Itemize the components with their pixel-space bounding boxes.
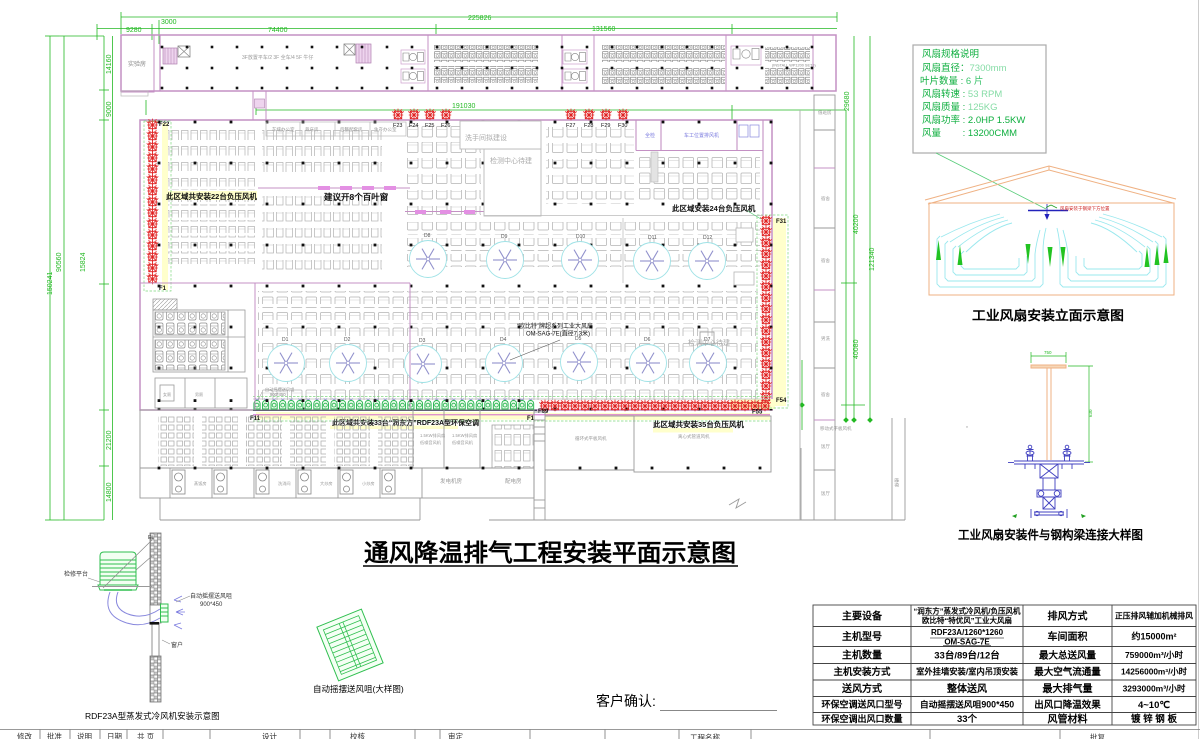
svg-text:21200: 21200 <box>106 430 113 450</box>
svg-text:主机安装方式: 主机安装方式 <box>833 666 891 678</box>
svg-text:环保空调送风口型号: 环保空调送风口型号 <box>821 699 902 710</box>
svg-text:9000: 9000 <box>106 101 113 117</box>
svg-text:风扇规格说明: 风扇规格说明 <box>922 48 979 60</box>
svg-text:90560: 90560 <box>56 252 63 272</box>
svg-text:最大空气流通量: 最大空气流通量 <box>1034 666 1101 678</box>
svg-text:风扇直径：7300mm: 风扇直径：7300mm <box>922 62 1007 74</box>
svg-text:F26: F26 <box>441 123 450 129</box>
svg-text:40080: 40080 <box>853 339 860 359</box>
svg-text:移动式平板风机: 移动式平板风机 <box>820 425 852 432</box>
svg-text:225826: 225826 <box>468 15 491 22</box>
svg-text:蒸饭房: 蒸饭房 <box>194 480 207 487</box>
svg-text:值班房: 值班房 <box>818 109 832 116</box>
svg-text:低噪音风机: 低噪音风机 <box>452 439 474 446</box>
svg-text:F25: F25 <box>425 123 434 129</box>
svg-text:1.5KW排风扇: 1.5KW排风扇 <box>420 432 445 439</box>
svg-text:工业风扇安装件与钢构梁连接大样图: 工业风扇安装件与钢构梁连接大样图 <box>958 527 1143 542</box>
svg-text:客户确认:: 客户确认: <box>596 693 656 709</box>
svg-text:说明: 说明 <box>77 731 92 739</box>
svg-text:检修平台: 检修平台 <box>64 570 88 578</box>
svg-text:F28: F28 <box>584 123 593 129</box>
svg-text:大炒房: 大炒房 <box>320 480 333 487</box>
svg-text:约15000m²: 约15000m² <box>1131 631 1176 642</box>
svg-text:此区域安装24台负压风机: 此区域安装24台负压风机 <box>672 203 756 213</box>
svg-text:楼梯: 楼梯 <box>893 478 900 487</box>
svg-text:主机数量: 主机数量 <box>842 649 882 662</box>
svg-text:工业风扇安装立面示意图: 工业风扇安装立面示意图 <box>972 308 1124 323</box>
svg-text:F24: F24 <box>409 123 418 129</box>
svg-text:121340: 121340 <box>869 248 876 271</box>
svg-text:环保空调出风口数量: 环保空调出风口数量 <box>821 713 902 724</box>
svg-text:循环式平板风机: 循环式平板风机 <box>575 435 607 442</box>
svg-text:后整配套房: 后整配套房 <box>340 126 363 133</box>
svg-text:F1: F1 <box>159 286 167 292</box>
svg-text:通风降温排气工程安装平面示意图: 通风降温排气工程安装平面示意图 <box>364 539 736 567</box>
svg-text:900*450: 900*450 <box>200 602 223 608</box>
svg-text:150241: 150241 <box>47 272 54 295</box>
svg-text:9280: 9280 <box>126 27 142 34</box>
svg-text:风管材料: 风管材料 <box>1048 712 1088 725</box>
svg-text:*: * <box>966 426 968 432</box>
svg-text:OM-SAG-7E: OM-SAG-7E <box>944 637 990 646</box>
svg-text:750: 750 <box>1044 350 1052 355</box>
svg-text:批复: 批复 <box>1090 732 1106 739</box>
svg-text:车缝办公室: 车缝办公室 <box>272 126 295 133</box>
svg-text:自动摇摆送风咀: 自动摇摆送风咀 <box>190 592 232 600</box>
svg-text:OM-SAG-7E(直径7.3米): OM-SAG-7E(直径7.3米) <box>526 330 590 338</box>
svg-text:D8: D8 <box>424 233 431 239</box>
svg-text:主机型号: 主机型号 <box>842 630 882 643</box>
svg-text:风扇质量 : 125KG: 风扇质量 : 125KG <box>922 101 998 113</box>
svg-text:宿舍: 宿舍 <box>821 257 830 264</box>
svg-text:镀 锌 钢 板: 镀 锌 钢 板 <box>1131 713 1177 725</box>
svg-text:出风口降温效果: 出风口降温效果 <box>1034 699 1101 711</box>
svg-text:F30: F30 <box>618 123 627 129</box>
svg-text:3293000m³/小时: 3293000m³/小时 <box>1123 683 1186 693</box>
svg-text:男厕: 男厕 <box>195 391 203 397</box>
svg-text:4~10℃: 4~10℃ <box>1138 700 1170 711</box>
svg-text:3000: 3000 <box>161 19 177 26</box>
svg-text:主要设备: 主要设备 <box>842 609 883 622</box>
svg-text:RDF23A型蒸发式冷风机安装示意图: RDF23A型蒸发式冷风机安装示意图 <box>85 711 220 721</box>
svg-text:日期: 日期 <box>107 732 122 739</box>
svg-text:实验房: 实验房 <box>128 60 146 68</box>
svg-text:此区域共安装22台负压风机: 此区域共安装22台负压风机 <box>166 191 257 201</box>
svg-text:裁床房: 裁床房 <box>305 126 319 133</box>
svg-text:生产办公室: 生产办公室 <box>374 126 397 133</box>
svg-text:131560: 131560 <box>592 26 615 33</box>
svg-text:1.5KW排风扇: 1.5KW排风扇 <box>452 432 477 439</box>
svg-text:风扇功率 : 2.0HP 1.5KW: 风扇功率 : 2.0HP 1.5KW <box>922 114 1025 126</box>
svg-text:40200: 40200 <box>853 214 860 234</box>
svg-text:风扇安装于钢梁下方位置: 风扇安装于钢梁下方位置 <box>1060 205 1110 212</box>
svg-text:小炒房: 小炒房 <box>362 480 375 487</box>
svg-text:F31: F31 <box>776 219 787 225</box>
svg-text:F22: F22 <box>159 122 170 128</box>
svg-text:风扇转速 : 53 RPM: 风扇转速 : 53 RPM <box>922 88 1002 100</box>
svg-text:D1: D1 <box>282 337 289 343</box>
svg-text:(INSTALL WP1200 SET6): (INSTALL WP1200 SET6) <box>772 64 816 68</box>
svg-text:33台/89台/12台: 33台/89台/12台 <box>934 649 1000 661</box>
svg-text:14800: 14800 <box>106 482 113 502</box>
svg-text:共 页: 共 页 <box>137 732 155 739</box>
svg-text:修改: 修改 <box>17 731 32 739</box>
svg-text:F27: F27 <box>566 123 575 129</box>
svg-text:74400: 74400 <box>268 27 288 34</box>
svg-text:洗消间: 洗消间 <box>278 480 291 487</box>
svg-text:EL: EL <box>148 535 154 541</box>
svg-text:3F放置平车/2 3F 全车/4 5F 牛仔: 3F放置平车/2 3F 全车/4 5F 牛仔 <box>242 54 313 61</box>
svg-text:759000m³/小时: 759000m³/小时 <box>1125 650 1184 660</box>
svg-text:室外挂墙安装/室内吊顶安装: 室外挂墙安装/室内吊顶安装 <box>916 667 1019 677</box>
svg-text:洗手间拟建设: 洗手间拟建设 <box>465 133 507 142</box>
svg-text:900*450: 900*450 <box>270 392 286 397</box>
svg-text:RDF23A/1260*1260: RDF23A/1260*1260 <box>931 628 1004 637</box>
svg-text:建议开8个百叶窗: 建议开8个百叶窗 <box>323 192 389 202</box>
svg-text:整体送风: 整体送风 <box>946 682 987 695</box>
svg-text:F54: F54 <box>776 398 787 404</box>
svg-text:191030: 191030 <box>452 103 475 110</box>
svg-text:检测中心待建: 检测中心待建 <box>688 338 730 347</box>
svg-text:15824: 15824 <box>80 252 87 272</box>
svg-text:630: 630 <box>1088 409 1093 417</box>
svg-text:工程名称: 工程名称 <box>690 732 720 739</box>
svg-text:送风方式: 送风方式 <box>841 682 882 695</box>
svg-text:宿舍: 宿舍 <box>821 195 830 202</box>
svg-text:叶片数量 : 6 片: 叶片数量 : 6 片 <box>920 75 983 87</box>
svg-text:“润东方”蒸发式冷风机/负压风机: “润东方”蒸发式冷风机/负压风机 <box>913 606 1021 616</box>
svg-text:D11: D11 <box>648 235 657 241</box>
svg-text:自动摇摆送风咀900*450: 自动摇摆送风咀900*450 <box>920 699 1014 710</box>
svg-text:车工位置排风机: 车工位置排风机 <box>684 132 719 139</box>
svg-text:D4: D4 <box>500 337 507 343</box>
svg-text:D10: D10 <box>576 234 585 240</box>
svg-text:全检: 全检 <box>645 132 655 139</box>
svg-text:F1: F1 <box>527 416 535 422</box>
svg-text:欧比特“特优风”工业大风扇: 欧比特“特优风”工业大风扇 <box>922 615 1012 625</box>
svg-text:车间面积: 车间面积 <box>1048 630 1088 643</box>
svg-text:正压排风辅加机械排风: 正压排风辅加机械排风 <box>1115 611 1193 621</box>
svg-text:低噪音风机: 低噪音风机 <box>420 439 442 446</box>
svg-text:排风方式: 排风方式 <box>1048 609 1088 622</box>
svg-text:批准: 批准 <box>47 731 62 739</box>
svg-text:F55: F55 <box>752 410 763 416</box>
svg-text:配电房: 配电房 <box>505 477 522 485</box>
svg-text:此区域共安装35台负压风机: 此区域共安装35台负压风机 <box>653 419 744 429</box>
svg-text:宿舍: 宿舍 <box>821 391 830 398</box>
svg-text:设计: 设计 <box>262 731 277 739</box>
svg-text:29680: 29680 <box>844 91 851 111</box>
svg-text:离心式管道风机: 离心式管道风机 <box>678 433 710 440</box>
svg-text:最大总送风量: 最大总送风量 <box>1039 649 1097 661</box>
svg-text:“欧比特”牌超系列工业大风扇: “欧比特”牌超系列工业大风扇 <box>517 322 593 330</box>
svg-text:风量 : 13200CMM: 风量 : 13200CMM <box>922 128 1017 139</box>
svg-text:审定: 审定 <box>448 731 463 739</box>
svg-text:窗户: 窗户 <box>171 641 183 649</box>
svg-text:男洗: 男洗 <box>821 335 830 342</box>
svg-text:D3: D3 <box>419 338 426 344</box>
svg-text:自动摇摆送风咀(大样图): 自动摇摆送风咀(大样图) <box>313 684 404 694</box>
svg-text:D2: D2 <box>344 337 351 343</box>
svg-text:14256000m³/小时: 14256000m³/小时 <box>1121 667 1188 677</box>
svg-text:饭厅: 饭厅 <box>821 443 830 450</box>
svg-text:发电机房: 发电机房 <box>440 477 463 485</box>
svg-text:最大排气量: 最大排气量 <box>1043 682 1093 695</box>
svg-text:D9: D9 <box>501 234 508 240</box>
svg-text:F29: F29 <box>601 123 610 129</box>
svg-text:饭厅: 饭厅 <box>821 490 830 497</box>
svg-text:D6: D6 <box>644 337 651 343</box>
svg-text:33个: 33个 <box>957 713 978 725</box>
svg-text:女厕: 女厕 <box>163 391 171 397</box>
svg-text:校核: 校核 <box>350 731 365 739</box>
svg-text:D12: D12 <box>703 235 712 241</box>
svg-text:14160: 14160 <box>106 54 113 74</box>
svg-text:检测中心待建: 检测中心待建 <box>490 156 532 165</box>
